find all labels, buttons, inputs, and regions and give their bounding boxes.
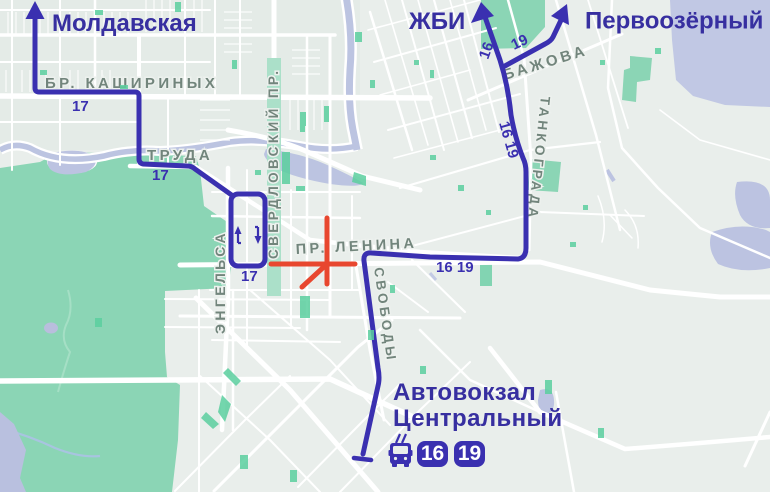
- svg-text:19: 19: [458, 442, 481, 465]
- svg-text:СВЕРДЛОВСКИЙ ПР.: СВЕРДЛОВСКИЙ ПР.: [266, 68, 281, 259]
- svg-text:16: 16: [421, 442, 444, 465]
- svg-text:Центральный: Центральный: [393, 405, 563, 432]
- svg-text:ЖБИ: ЖБИ: [408, 8, 465, 35]
- svg-text:17: 17: [241, 268, 258, 285]
- svg-text:Молдавская: Молдавская: [52, 10, 197, 37]
- svg-text:17: 17: [152, 167, 169, 184]
- svg-text:ТРУДА: ТРУДА: [147, 147, 213, 164]
- svg-text:БР. КАШИРИНЫХ: БР. КАШИРИНЫХ: [45, 75, 218, 92]
- svg-text:Автовокзал: Автовокзал: [393, 379, 536, 406]
- svg-text:ЭНГЕЛЬСА: ЭНГЕЛЬСА: [212, 230, 228, 334]
- svg-text:17: 17: [72, 98, 89, 115]
- svg-text:16 19: 16 19: [436, 259, 474, 276]
- svg-text:Первоозёрный: Первоозёрный: [585, 8, 763, 35]
